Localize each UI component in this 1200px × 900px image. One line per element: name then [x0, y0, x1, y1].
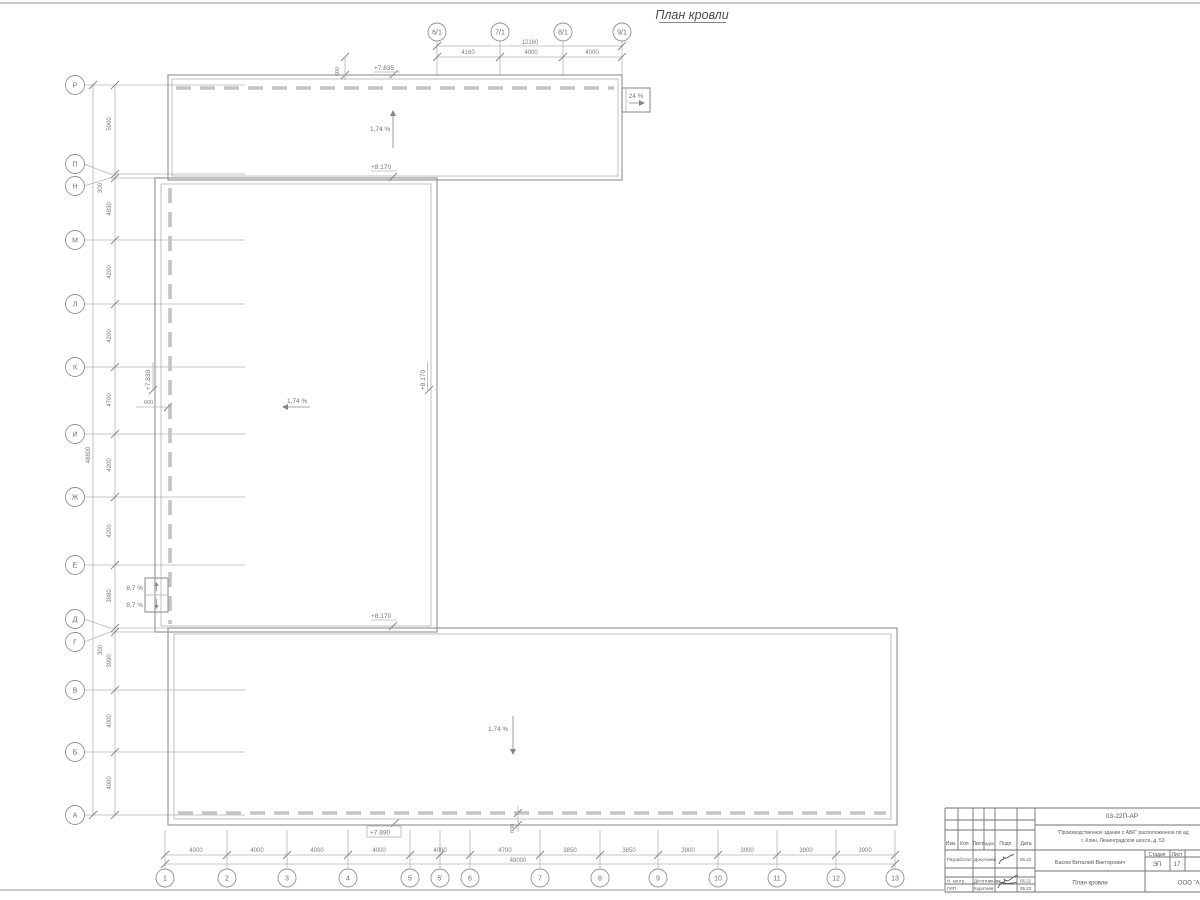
- axis-label: 2: [225, 876, 229, 883]
- dim-label: 4000: [107, 714, 113, 728]
- axis-label: 8/1: [558, 30, 568, 37]
- dim-label: 3900: [740, 848, 754, 854]
- axis-label: 4: [346, 876, 350, 883]
- dim-label: 3850: [622, 848, 636, 854]
- axis-label: 5': [437, 876, 442, 883]
- col-header: Кол.: [960, 841, 970, 847]
- dim-total-label: 12160: [522, 40, 539, 46]
- col-header: Подп.: [999, 841, 1012, 847]
- project-address: г. Клин, Ленинградское шоссе, д. 53: [1081, 838, 1164, 844]
- level-mark: +7.835: [374, 65, 394, 72]
- stage-label: Стадия: [1148, 852, 1165, 858]
- axis-label: П: [72, 162, 77, 169]
- dim-label: 3900: [681, 848, 695, 854]
- dim-label: 4000: [524, 50, 538, 56]
- axis-label: 6: [468, 876, 472, 883]
- axis-label: 5: [408, 876, 412, 883]
- roof-lower-block: [168, 628, 897, 825]
- dim-label: 4000: [372, 848, 386, 854]
- dim-label: 4700: [498, 848, 512, 854]
- dim-label: 4000: [250, 848, 264, 854]
- axis-label: А: [73, 813, 78, 820]
- person-name: Десятникова: [974, 879, 1001, 884]
- slope-label: 8,7 %: [126, 602, 143, 609]
- axis-label: 12: [832, 876, 840, 883]
- slope-label: 1,74 %: [488, 726, 508, 733]
- axis-label: 9/1: [617, 30, 627, 37]
- level-mark: +7.830: [145, 370, 152, 390]
- axis-label: 6/1: [432, 30, 442, 37]
- roof-upper-block: [168, 75, 622, 180]
- axis-label: М: [72, 238, 78, 245]
- dim-label: 4700: [107, 393, 113, 407]
- sheet-frame: [0, 3, 1200, 890]
- axis-label: 7/1: [495, 30, 505, 37]
- date-value: 05.22: [1020, 879, 1032, 884]
- sheet-label: Лист: [1172, 852, 1184, 858]
- level-mark: +8.170: [371, 613, 391, 620]
- dim-label: 3990: [107, 654, 113, 668]
- roof-ladder: [145, 578, 168, 612]
- annotations: +7.835 +8.170 +7.830 +8.170 +8.170 +7.89…: [126, 53, 645, 837]
- sheet-value: 17: [1174, 862, 1181, 868]
- level-mark: +8.170: [420, 370, 427, 390]
- axis-label: Р: [73, 83, 78, 90]
- ramp-24-box: [622, 88, 650, 112]
- axis-label: 13: [891, 876, 899, 883]
- axis-label: Г: [73, 640, 77, 647]
- col-header: №док.: [983, 841, 995, 846]
- slope-label: 24 %: [629, 93, 644, 100]
- roof-middle-block: [155, 178, 437, 632]
- slope-label: 1,74 %: [287, 398, 307, 405]
- axis-label: Б: [73, 750, 78, 757]
- role-label: ГИП: [947, 886, 956, 891]
- dim-label: 300: [98, 644, 104, 655]
- signature-icon: [999, 855, 1014, 864]
- person-name: Докучаева: [974, 857, 997, 862]
- level-mark: +8.170: [371, 164, 391, 171]
- dim-label: 4000: [585, 50, 599, 56]
- level-mark: +7.890: [370, 830, 390, 837]
- doc-number: 03-22П-АР: [1106, 813, 1138, 820]
- axis-label: В: [73, 688, 78, 695]
- dim-label: 600: [144, 400, 153, 406]
- slope-label: 1,74 %: [370, 126, 390, 133]
- axis-label: Д: [73, 617, 78, 624]
- axis-label: 11: [773, 876, 780, 883]
- axis-label: 8: [598, 876, 602, 883]
- date-value: 05.22: [1020, 886, 1032, 891]
- drawing-title: План кровли: [1072, 881, 1107, 887]
- dim-label: 600: [335, 67, 341, 76]
- axis-grid-bottom: 1 2 3 4 5 5' 6 7 8 9 10 11 12 13 4000 40…: [156, 830, 904, 887]
- col-header: Изм.: [946, 841, 957, 847]
- dim-label: 4000: [433, 848, 447, 854]
- axis-label: 1: [163, 876, 167, 883]
- chief-name: Басюк Виталий Викторович: [1055, 859, 1125, 866]
- role-label: Н. контр.: [947, 879, 966, 884]
- axis-label: Л: [73, 302, 78, 309]
- dim-label: 5900: [107, 117, 113, 131]
- slope-label: 8,7 %: [126, 585, 143, 592]
- dim-label: 3900: [799, 848, 813, 854]
- axis-label: 10: [714, 876, 722, 883]
- role-label: Разработал: [947, 857, 972, 862]
- dim-label: 3850: [563, 848, 577, 854]
- axis-label: Н: [72, 184, 77, 191]
- person-name: Коротаев: [974, 886, 994, 891]
- dim-label: 4000: [310, 848, 324, 854]
- dim-label: 4000: [107, 776, 113, 790]
- dim-label: 4000: [189, 848, 203, 854]
- axis-label: 9: [656, 876, 660, 883]
- dim-label: 3980: [107, 589, 113, 603]
- title-block: 03-22П-АР "Производственное здание с АБК…: [945, 808, 1200, 892]
- axis-label: Е: [73, 563, 78, 570]
- dim-label: 4200: [107, 458, 113, 472]
- page-title: План кровли: [655, 8, 728, 22]
- project-name: "Производственное здание с АБК" располож…: [1057, 830, 1188, 836]
- axis-label: Ж: [72, 495, 79, 502]
- dim-total-label: 48800: [86, 446, 92, 463]
- company-name: ООО "Аль: [1178, 881, 1200, 887]
- axis-label: 3: [285, 876, 289, 883]
- axis-label: И: [72, 432, 77, 439]
- drawing-sheet: План кровли 6/1 7/1 8/1 9/1 4160 4000 40…: [0, 0, 1200, 900]
- dim-label: 4200: [107, 329, 113, 343]
- dim-label: 3900: [858, 848, 872, 854]
- col-header: Дата: [1020, 841, 1031, 847]
- axis-grid-top: 6/1 7/1 8/1 9/1 4160 4000 4000 12160: [428, 23, 631, 75]
- dim-label: 600: [510, 824, 516, 833]
- dim-label: 4830: [107, 202, 113, 216]
- date-value: 05.22: [1020, 857, 1032, 862]
- roof-plan-drawing: План кровли 6/1 7/1 8/1 9/1 4160 4000 40…: [0, 0, 1200, 900]
- stage-value: ЭП: [1153, 862, 1162, 868]
- axis-label: 7: [538, 876, 542, 883]
- dim-label: 4200: [107, 524, 113, 538]
- dim-label: 4160: [461, 50, 475, 56]
- dim-label: 300: [98, 182, 104, 193]
- dim-total-label: 48000: [510, 858, 527, 864]
- dim-label: 4200: [107, 265, 113, 279]
